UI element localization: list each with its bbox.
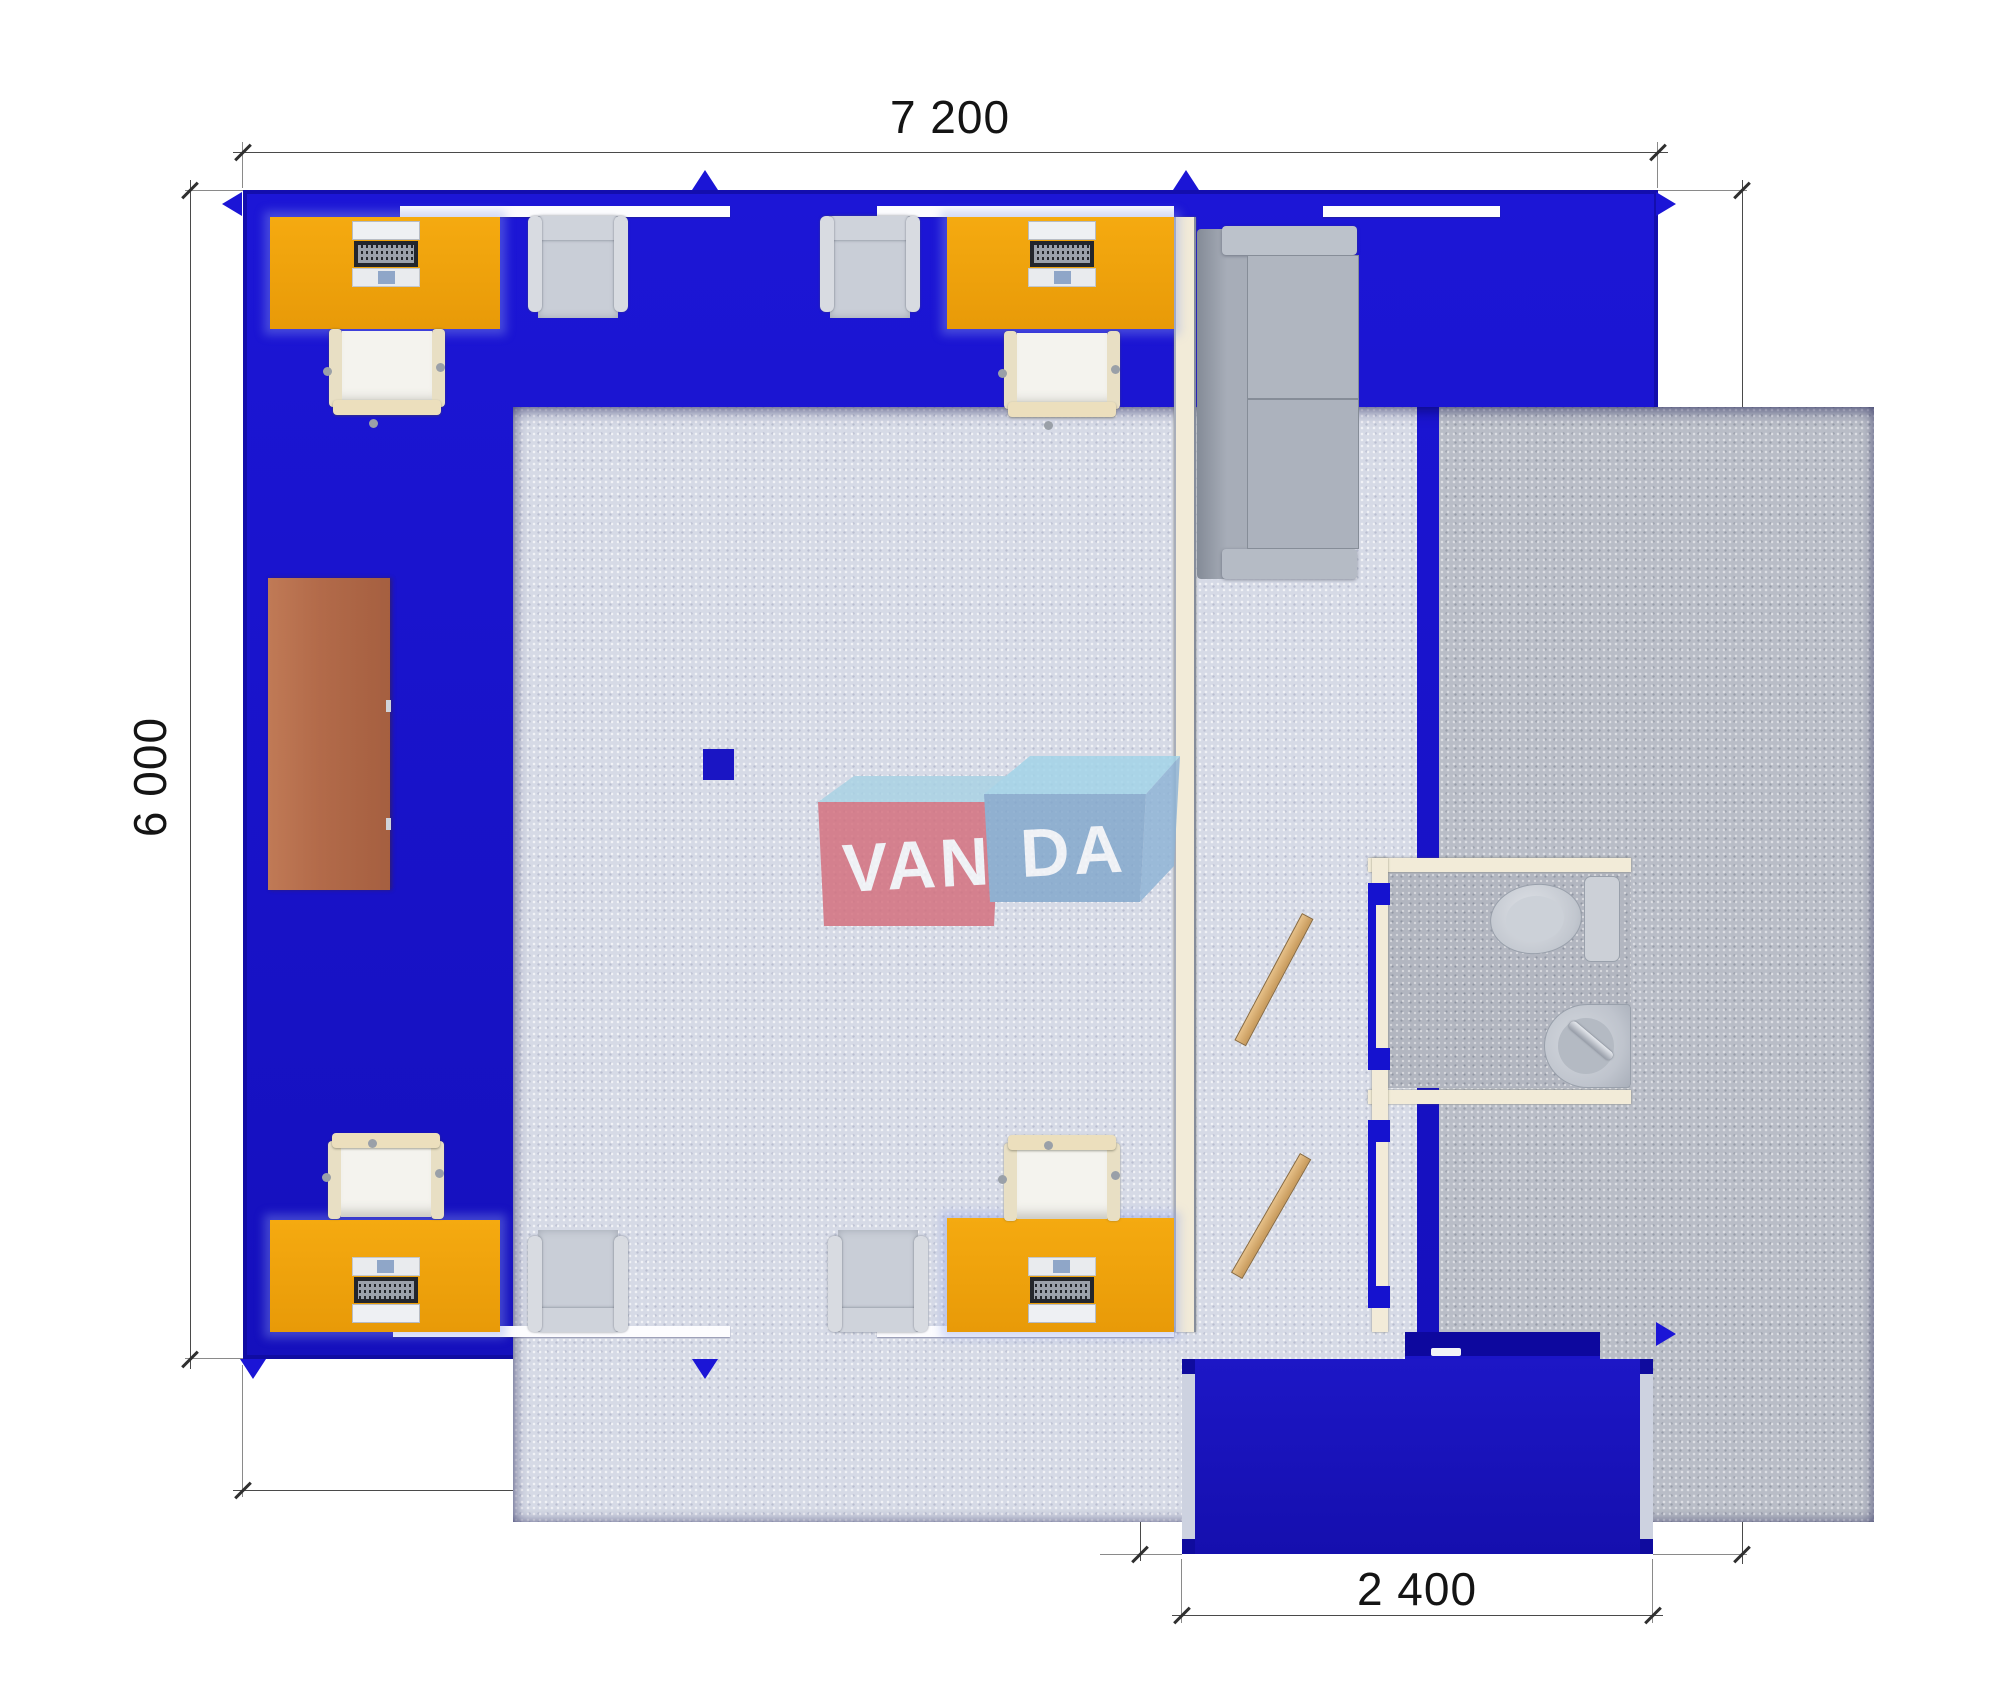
- module-joint-arrow: [1656, 1322, 1676, 1346]
- guest-armchair: [528, 216, 628, 318]
- chair-arm: [432, 329, 445, 407]
- logo-text-da: DA: [1018, 811, 1128, 892]
- chair-caster: [998, 1175, 1007, 1184]
- sofa-armrest: [1222, 226, 1357, 255]
- module-joint-arrow: [222, 192, 242, 216]
- chair-caster: [998, 369, 1007, 378]
- armchair-back: [826, 216, 914, 240]
- chair-caster: [323, 367, 332, 376]
- chair-seat: [1017, 1145, 1107, 1219]
- dim-top-label: 7 200: [850, 90, 1050, 144]
- storage-door-jamb: [1368, 1286, 1390, 1308]
- laptop-lid: [1028, 221, 1096, 240]
- armchair-back: [534, 1308, 622, 1332]
- entrance-door-handle: [1431, 1348, 1461, 1356]
- armchair-arm: [906, 216, 920, 312]
- sofa-armrest: [1222, 549, 1357, 579]
- storage-door-jamb: [1368, 1120, 1390, 1142]
- laptop-touchpad: [1054, 271, 1071, 284]
- laptop-lid: [1028, 1304, 1096, 1323]
- module-joint-arrow: [240, 1359, 266, 1379]
- porch-post: [1640, 1539, 1653, 1554]
- chair-back: [1008, 1135, 1116, 1150]
- sofa-back: [1197, 229, 1247, 579]
- desk-chair: [1004, 1135, 1120, 1221]
- laptop-lid: [352, 1304, 420, 1323]
- desk-chair: [329, 329, 445, 415]
- armchair-arm: [528, 1236, 542, 1332]
- wc-divider-wall: [1368, 1090, 1631, 1104]
- dim-ext: [1658, 190, 1747, 191]
- desk-chair: [1004, 331, 1120, 417]
- laptop-lid: [352, 221, 420, 240]
- armchair-arm: [614, 1236, 628, 1332]
- storage-door-frame: [1368, 1123, 1376, 1307]
- porch-post: [1182, 1539, 1195, 1554]
- guest-armchair: [828, 1230, 928, 1332]
- armchair-arm: [528, 216, 542, 312]
- wc-door-frame: [1368, 887, 1376, 1070]
- armchair-arm: [828, 1236, 842, 1332]
- dim-ext: [242, 1365, 243, 1497]
- porch-side-step: [1640, 1359, 1653, 1554]
- chair-back: [332, 1133, 440, 1148]
- chair-caster: [322, 1173, 331, 1182]
- laptop: [1028, 221, 1096, 287]
- armchair-arm: [614, 216, 628, 312]
- module-joint-arrow: [1656, 192, 1676, 216]
- logo-text-van: VAN: [840, 823, 994, 907]
- armchair-back: [834, 1308, 922, 1332]
- dim-ext: [185, 190, 243, 191]
- armchair-arm: [820, 216, 834, 312]
- dim-left-line: [190, 180, 191, 1369]
- chair-back: [1008, 402, 1116, 417]
- porch-post: [1182, 1359, 1195, 1374]
- window-top-3: [1323, 206, 1500, 217]
- ceiling-lamp: [703, 749, 734, 780]
- wc-door-jamb: [1368, 1048, 1390, 1070]
- laptop: [1028, 1257, 1096, 1323]
- dim-porch-bottom-line: [1172, 1615, 1663, 1616]
- chair-arm: [1107, 1143, 1120, 1221]
- chair-arm: [1107, 331, 1120, 409]
- sofa: [1197, 226, 1360, 582]
- chair-seat: [341, 1143, 431, 1217]
- laptop-touchpad: [1053, 1260, 1070, 1273]
- dim-top-line: [233, 152, 1668, 153]
- dim-left-label: 6 000: [123, 677, 177, 877]
- laptop-keyboard: [354, 1277, 418, 1303]
- laptop-touchpad: [377, 1260, 394, 1273]
- wc-door-jamb: [1368, 883, 1390, 905]
- wc-top-wall: [1368, 858, 1631, 872]
- sideboard-handle: [386, 818, 391, 830]
- laptop-keyboard: [354, 241, 418, 267]
- armchair-arm: [914, 1236, 928, 1332]
- sofa-seat: [1247, 399, 1359, 549]
- module-joint-arrow: [692, 170, 718, 190]
- dim-ext: [1653, 1554, 1747, 1555]
- chair-arm: [431, 1141, 444, 1219]
- laptop: [352, 1257, 420, 1323]
- logo-blue-top-face: [984, 756, 1180, 794]
- chair-back: [333, 400, 441, 415]
- sofa-seat: [1247, 255, 1359, 399]
- toilet-tank: [1584, 876, 1620, 962]
- laptop: [352, 221, 420, 287]
- guest-armchair: [528, 1230, 628, 1332]
- chair-seat: [342, 331, 432, 405]
- dim-porch-bottom-label: 2 400: [1317, 1562, 1517, 1616]
- desk-chair: [328, 1133, 444, 1219]
- armchair-back: [534, 216, 622, 240]
- guest-armchair: [820, 216, 920, 318]
- porch-side-step: [1182, 1359, 1195, 1554]
- sideboard-handle: [386, 700, 391, 712]
- chair-seat: [1017, 333, 1107, 407]
- floor-plan-canvas: 7 200 6 000 6 000 1 000 4 800 1 000 2 40…: [0, 0, 2000, 1682]
- dim-ext: [185, 1358, 243, 1359]
- vanda-logo: VAN DA: [808, 750, 1194, 930]
- laptop-touchpad: [378, 271, 395, 284]
- porch-post: [1640, 1359, 1653, 1374]
- window-top-2: [877, 206, 1174, 217]
- module-joint-arrow: [692, 1359, 718, 1379]
- module-joint-arrow: [1173, 170, 1199, 190]
- laptop-keyboard: [1030, 1277, 1094, 1303]
- sideboard: [268, 578, 390, 890]
- entrance-porch: [1182, 1359, 1653, 1554]
- laptop-keyboard: [1030, 241, 1094, 267]
